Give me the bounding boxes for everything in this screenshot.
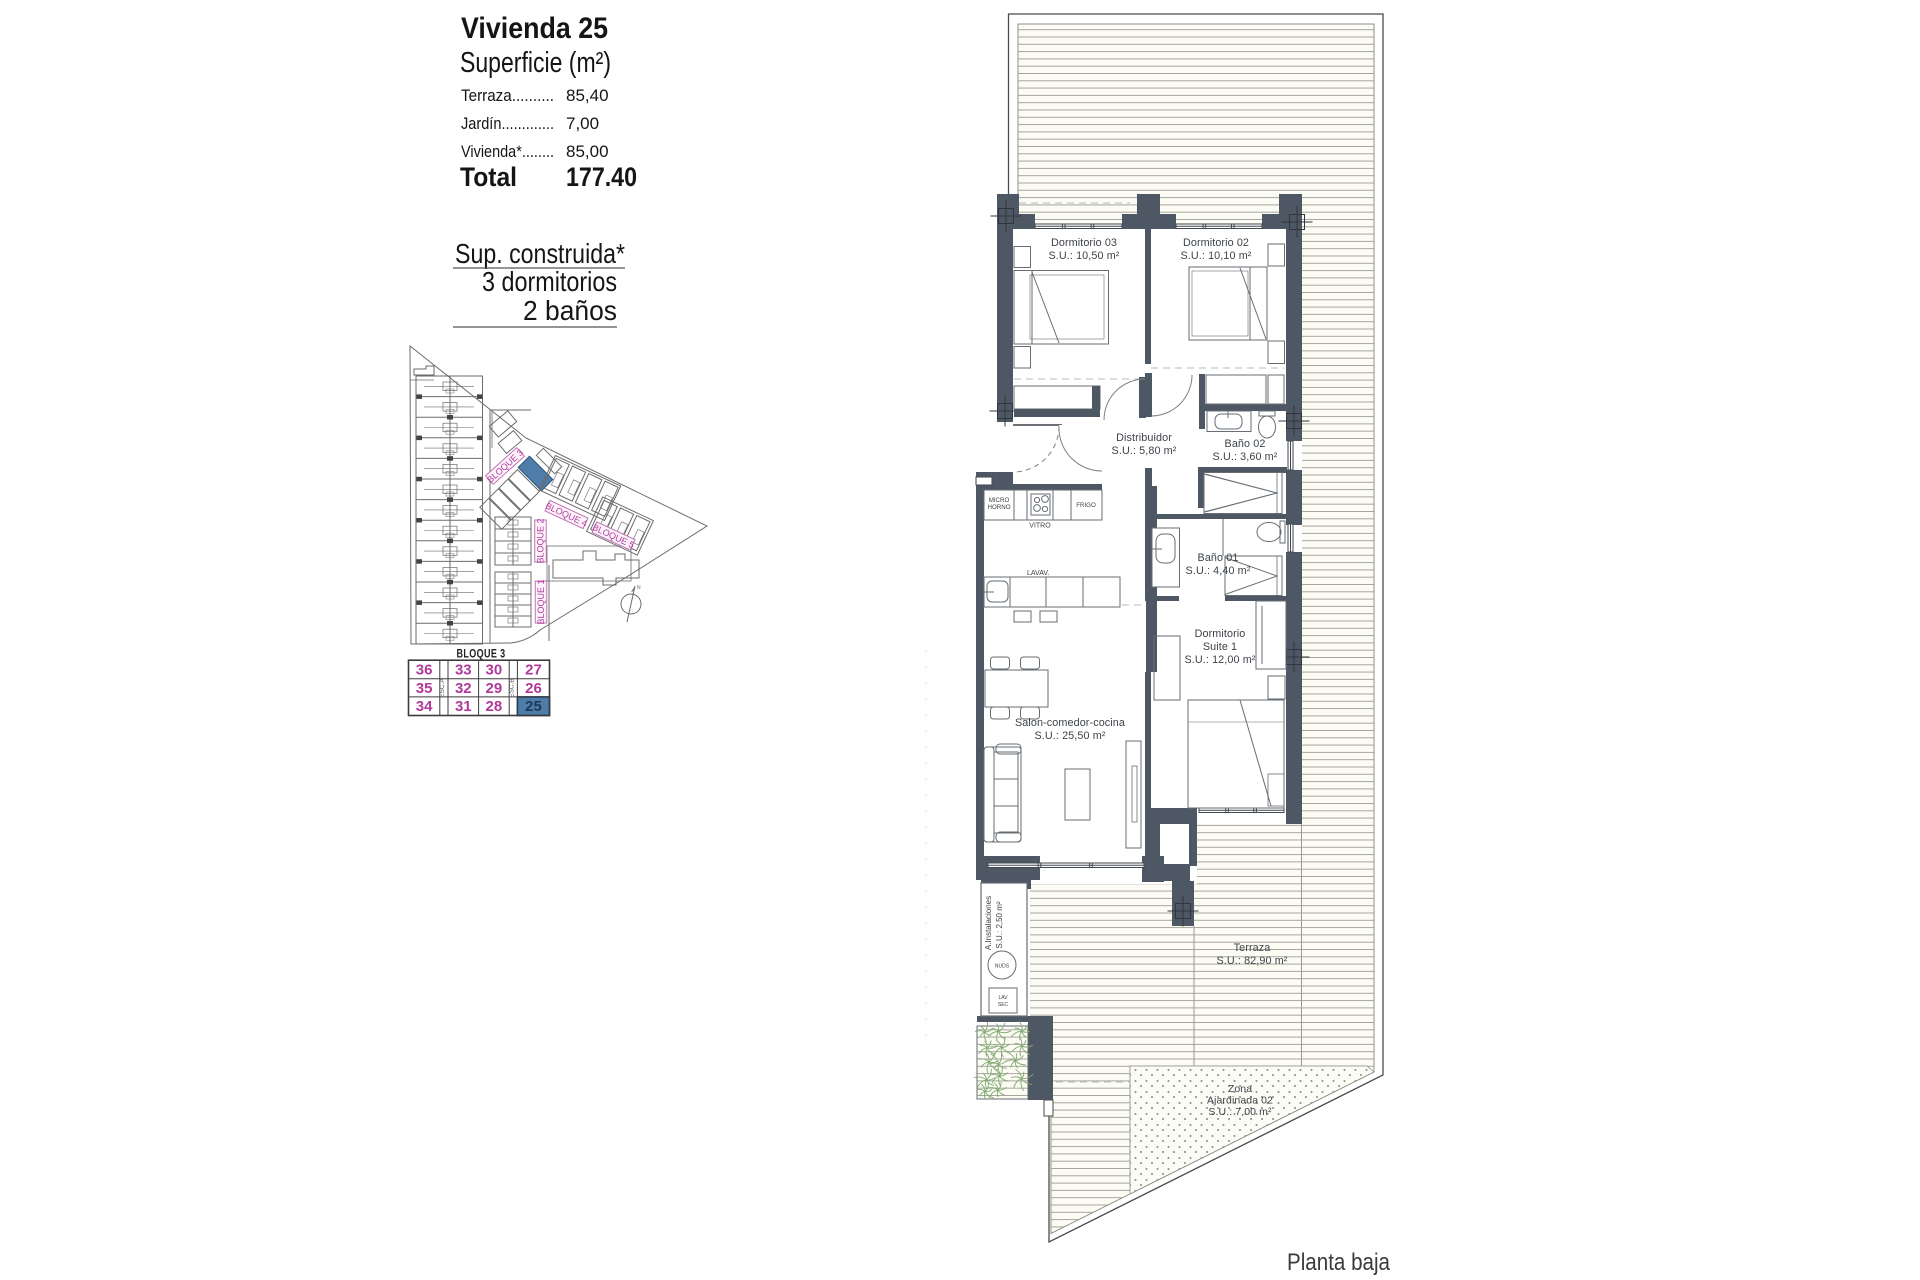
svg-text:SEC: SEC	[998, 1002, 1009, 1008]
svg-text:27: 27	[525, 661, 542, 678]
svg-text:S.U.: 7,00 m²: S.U.: 7,00 m²	[1208, 1106, 1272, 1118]
svg-text:HORNO: HORNO	[987, 504, 1010, 511]
svg-text:Distribuidor: Distribuidor	[1116, 432, 1172, 444]
svg-text:Dormitorio 03: Dormitorio 03	[1051, 237, 1117, 249]
svg-text:BLOQUE 3: BLOQUE 3	[457, 647, 506, 661]
svg-text:32: 32	[455, 680, 472, 697]
svg-text:S.U.: 10,10 m²: S.U.: 10,10 m²	[1180, 250, 1251, 262]
svg-text:Planta baja: Planta baja	[1287, 1249, 1390, 1276]
svg-text:25: 25	[525, 698, 542, 715]
svg-text:Vivienda 25: Vivienda 25	[461, 12, 608, 45]
svg-text:31: 31	[455, 698, 472, 715]
svg-text:3 dormitorios: 3 dormitorios	[482, 266, 617, 297]
svg-text:29: 29	[486, 680, 503, 697]
svg-text:Suite 1: Suite 1	[1203, 641, 1237, 653]
svg-text:Baño 02: Baño 02	[1225, 438, 1266, 450]
svg-text:35: 35	[416, 680, 433, 697]
svg-text:2 baños: 2 baños	[523, 295, 617, 326]
svg-text:NUDS: NUDS	[995, 964, 1010, 970]
svg-text:Superficie (m²): Superficie (m²)	[460, 47, 611, 79]
svg-text:Vivienda*........: Vivienda*........	[461, 142, 554, 161]
svg-text:Ajardinada 02: Ajardinada 02	[1207, 1095, 1273, 1107]
svg-text:Sup. construida*: Sup. construida*	[455, 238, 625, 269]
svg-text:Jardín.............: Jardín.............	[461, 114, 554, 133]
svg-text:177.40: 177.40	[566, 162, 637, 192]
svg-text:S.U.: 5,80 m²: S.U.: 5,80 m²	[1112, 445, 1177, 457]
svg-text:MICRO: MICRO	[989, 497, 1010, 504]
svg-text:S.U.: 2,50 m²: S.U.: 2,50 m²	[995, 901, 1004, 948]
svg-text:LAVAV.: LAVAV.	[1027, 570, 1049, 577]
svg-text:N: N	[637, 585, 641, 591]
svg-text:Zona: Zona	[1228, 1083, 1252, 1095]
svg-text:ESC.B: ESC.B	[509, 678, 516, 698]
svg-text:LAV: LAV	[998, 995, 1008, 1001]
svg-text:Salon-comedor-cocina: Salon-comedor-cocina	[1015, 717, 1125, 729]
svg-text:A.Instalaciones: A.Instalaciones	[984, 896, 993, 950]
svg-text:36: 36	[416, 661, 433, 678]
svg-text:S.U.: 82,90 m²: S.U.: 82,90 m²	[1216, 955, 1287, 967]
svg-text:Dormitorio: Dormitorio	[1195, 628, 1246, 640]
svg-text:FRIGO: FRIGO	[1076, 502, 1096, 509]
svg-text:Baño 01: Baño 01	[1198, 552, 1239, 564]
svg-text:Total: Total	[460, 162, 517, 192]
svg-text:BLOQUE 2: BLOQUE 2	[536, 518, 546, 563]
svg-text:34: 34	[416, 698, 433, 715]
svg-text:7,00: 7,00	[566, 114, 599, 133]
svg-text:26: 26	[525, 680, 542, 697]
svg-text:BLOQUE 1: BLOQUE 1	[536, 579, 546, 624]
svg-text:33: 33	[455, 661, 472, 678]
svg-text:Terraza..........: Terraza..........	[461, 86, 554, 105]
svg-text:S.U.: 10,50 m²: S.U.: 10,50 m²	[1048, 250, 1119, 262]
svg-text:S.U.: 3,60 m²: S.U.: 3,60 m²	[1213, 451, 1278, 463]
svg-text:S.U.: 12,00 m²: S.U.: 12,00 m²	[1184, 654, 1255, 666]
svg-text:30: 30	[486, 661, 503, 678]
svg-text:85,40: 85,40	[566, 86, 609, 105]
svg-text:Dormitorio 02: Dormitorio 02	[1183, 237, 1249, 249]
svg-text:Terraza: Terraza	[1234, 942, 1271, 954]
svg-text:ESC.A: ESC.A	[439, 678, 446, 698]
svg-text:S.U.: 25,50 m²: S.U.: 25,50 m²	[1034, 730, 1105, 742]
svg-text:85,00: 85,00	[566, 142, 609, 161]
svg-text:VITRO: VITRO	[1029, 523, 1051, 530]
svg-text:28: 28	[486, 698, 503, 715]
svg-text:S.U.: 4,40 m²: S.U.: 4,40 m²	[1186, 565, 1251, 577]
